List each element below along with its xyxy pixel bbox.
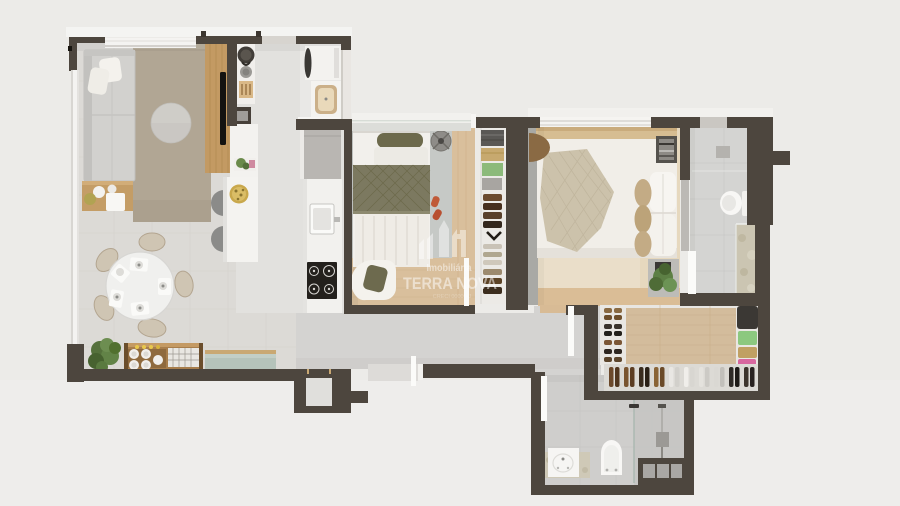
svg-text:TERRA NOVA: TERRA NOVA <box>403 274 497 293</box>
svg-text:CRECI 00000-J: CRECI 00000-J <box>433 294 472 300</box>
svg-text:Imobiliária: Imobiliária <box>427 262 472 274</box>
